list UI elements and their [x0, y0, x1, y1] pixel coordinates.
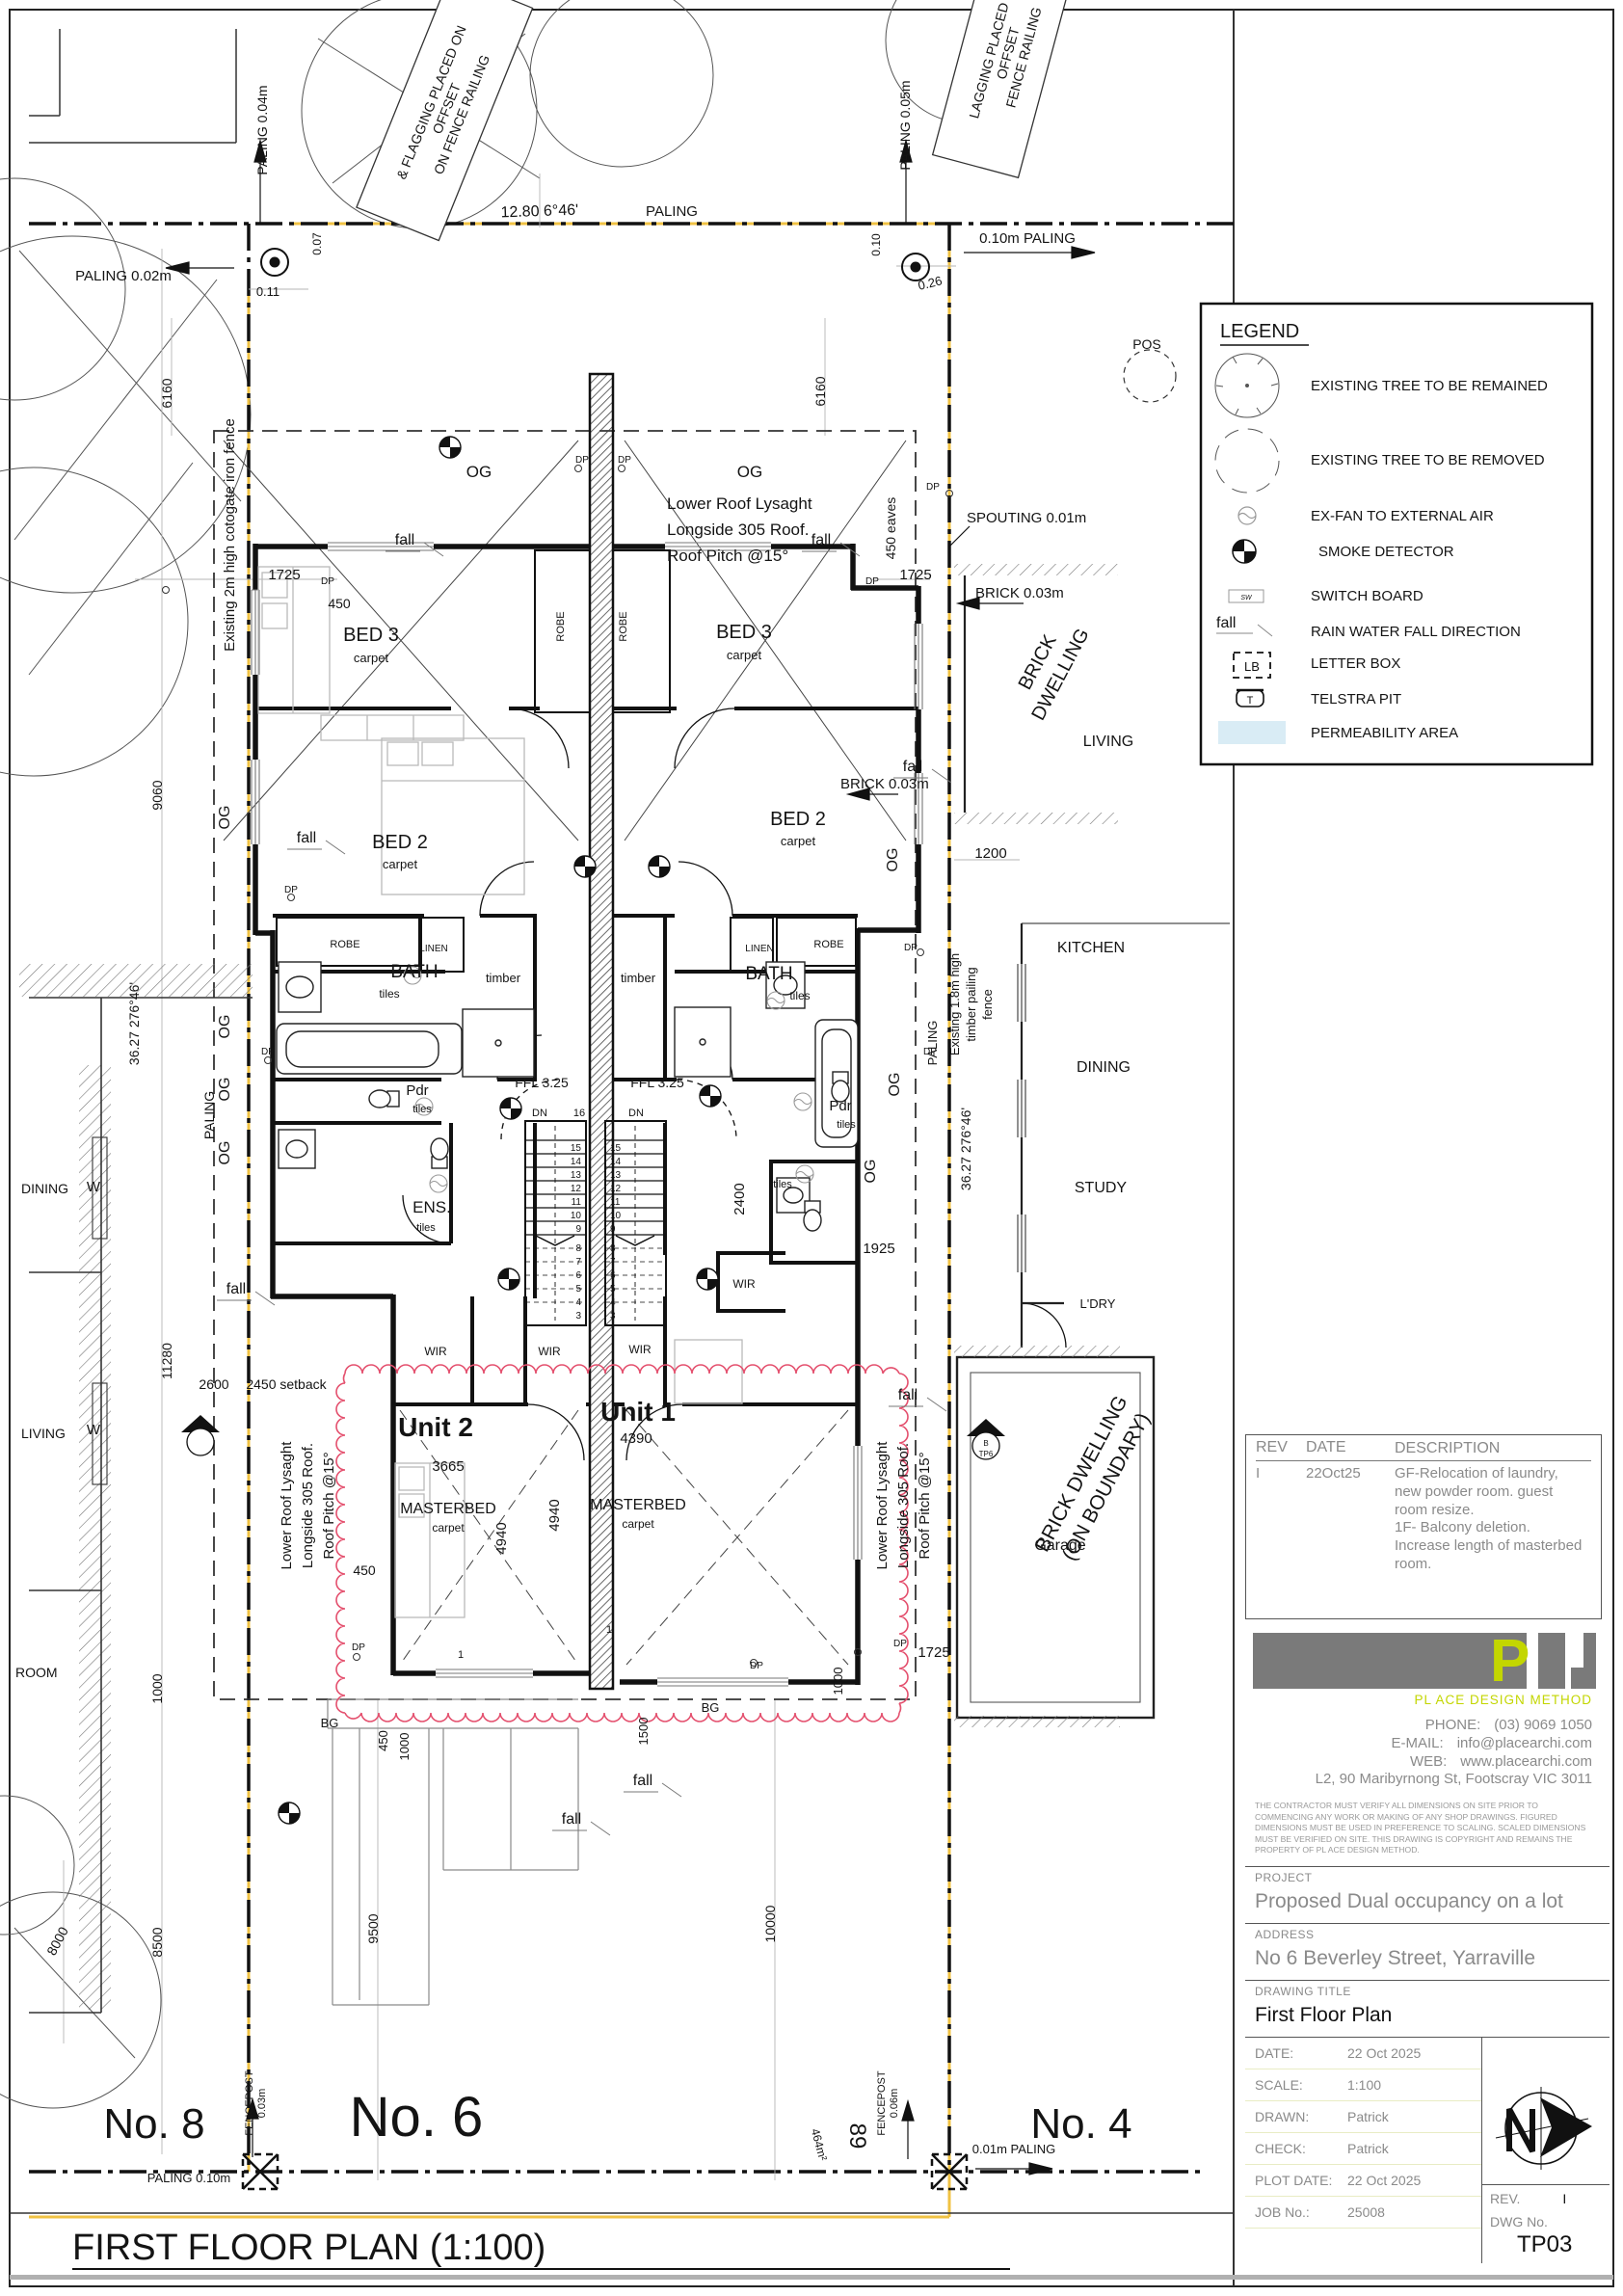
- phone-value: (03) 9069 1050: [1494, 1717, 1592, 1735]
- info-value: 22 Oct 2025: [1347, 2173, 1481, 2188]
- stair-number: 15: [571, 1143, 582, 1154]
- info-value: 22 Oct 2025: [1347, 2045, 1481, 2061]
- smoke-detector-icon: [500, 1098, 521, 1119]
- plan-label: 1: [606, 1624, 612, 1636]
- legend-item-label: SMOKE DETECTOR: [1318, 544, 1454, 560]
- plan-label: tiles: [789, 989, 810, 1002]
- info-label: CHECK:: [1255, 2141, 1347, 2156]
- plan-label: 1725: [899, 567, 931, 583]
- smoke-detector-icon: [498, 1268, 519, 1290]
- phone-label: PHONE:: [1425, 1717, 1481, 1735]
- smoke-detector-legend-icon: [1233, 540, 1256, 563]
- permeability-icon: [1218, 721, 1286, 744]
- plan-label: BATH: [745, 964, 792, 984]
- plan-label: LINEN: [419, 944, 447, 954]
- plan-label: W: [87, 1422, 101, 1438]
- plan-label: PALING: [646, 203, 698, 220]
- stair-number: 5: [575, 1284, 581, 1295]
- plan-label: OG: [737, 463, 762, 481]
- plan-label: Unit 1: [600, 1397, 676, 1427]
- plan-label: carpet: [354, 651, 389, 665]
- plan-label: tiles: [837, 1119, 856, 1131]
- address-value: No 6 Beverley Street, Yarraville: [1255, 1947, 1602, 1970]
- stair-number: 9: [610, 1224, 616, 1235]
- plan-label: fall: [811, 532, 831, 548]
- revision-desc: GF-Relocation of laundry, new powder roo…: [1395, 1465, 1591, 1574]
- plan-label: OG: [217, 1078, 233, 1102]
- stair-number: 8: [610, 1243, 616, 1254]
- plan-label: 0.07: [310, 232, 324, 255]
- plan-label: OG: [217, 1015, 233, 1039]
- plan-label: 1: [458, 1649, 464, 1661]
- stair-number: 6: [610, 1270, 616, 1281]
- plan-label: 12.80 6°46': [500, 202, 578, 222]
- plan-label: fall: [898, 1387, 918, 1403]
- plan-label: DP: [923, 1047, 937, 1057]
- plan-label: DP: [618, 455, 631, 466]
- plan-label: Unit 2: [398, 1412, 473, 1442]
- plan-label: Lower Roof LysaghtLongside 305 Roof.Roof…: [279, 1441, 337, 1570]
- plan-label: OG: [466, 463, 492, 481]
- plan-label: No. 8: [103, 2100, 204, 2148]
- plan-label: ROBE: [813, 939, 843, 950]
- plan-label: fall: [903, 759, 922, 775]
- telstra-text: T: [1247, 695, 1254, 707]
- plan-label: BED 2: [372, 832, 428, 853]
- pos-circle: [1124, 350, 1176, 402]
- plan-label: DP: [904, 943, 918, 953]
- plan-label: B: [983, 1439, 988, 1448]
- smoke-detector-icon: [279, 1802, 300, 1824]
- plan-label: OG: [863, 1160, 879, 1184]
- plan-label: 450: [328, 596, 351, 611]
- plan-label: DP: [893, 1639, 907, 1649]
- legend-item-label: RAIN WATER FALL DIRECTION: [1311, 624, 1521, 640]
- legend: LEGEND SW fall LB T: [1201, 304, 1592, 764]
- plan-label: MASTERBED: [590, 1497, 686, 1513]
- plan-label: fall: [395, 532, 414, 548]
- exfan-icon: [430, 1175, 447, 1192]
- downpipe-icon: [575, 466, 582, 472]
- stair-number: 3: [610, 1311, 616, 1322]
- plan-label: 0.01m PALING: [972, 2142, 1055, 2156]
- plan-label: BED 3: [716, 622, 772, 643]
- plan-label: 4940: [546, 1499, 563, 1531]
- plan-label: 4940: [493, 1522, 510, 1554]
- boundary-hatching: [19, 564, 1120, 2010]
- plan-label: 6160: [159, 378, 174, 408]
- info-label: DATE:: [1255, 2045, 1347, 2061]
- letterbox-text: LB: [1244, 659, 1260, 674]
- plan-label: 89: [844, 2123, 870, 2149]
- email-label: E-MAIL:: [1392, 1735, 1444, 1753]
- plan-label: tiles: [412, 1104, 432, 1115]
- dwg-number: TP03: [1517, 2231, 1610, 2258]
- plan-label: DINING: [21, 1181, 68, 1196]
- plan-label: tiles: [379, 987, 399, 1001]
- plan-label: POS: [1132, 336, 1161, 352]
- survey-benchmark-icon: [261, 249, 929, 280]
- legend-title: LEGEND: [1220, 321, 1299, 342]
- plan-label: DN: [628, 1108, 644, 1119]
- dwg-label: DWG No.: [1490, 2214, 1610, 2229]
- date-col-header: DATE: [1306, 1439, 1395, 1458]
- downpipe-icon: [354, 1654, 360, 1661]
- plan-label: WIR: [538, 1345, 561, 1358]
- plan-label: ROBE: [555, 611, 567, 641]
- plan-label: PALING 0.04m: [254, 85, 270, 174]
- plan-label: BRICKDWELLING: [1004, 613, 1093, 724]
- plan-label: fall: [226, 1281, 246, 1297]
- revision-date: 22Oct25: [1306, 1465, 1395, 1574]
- plan-label: KITCHEN: [1057, 940, 1125, 956]
- info-table: DATE:22 Oct 2025 SCALE:1:100 DRAWN:Patri…: [1245, 2037, 1610, 2263]
- info-label: DRAWN:: [1255, 2109, 1347, 2124]
- plan-label: timber: [486, 971, 521, 985]
- plan-label: carpet: [432, 1521, 465, 1535]
- info-label: JOB No.:: [1255, 2204, 1347, 2220]
- legend-item-label: PERMEABILITY AREA: [1311, 725, 1458, 741]
- party-wall: [590, 374, 613, 1689]
- plan-label: 1000: [831, 1668, 845, 1695]
- stair-number: 7: [610, 1257, 616, 1268]
- lower-porch-structures: [328, 1699, 578, 2005]
- plan-label: 36.27 276°46': [958, 1108, 973, 1190]
- plan-label: 1500: [636, 1718, 651, 1746]
- plan-label: LIVING: [21, 1426, 66, 1441]
- plan-label: fall: [562, 1811, 581, 1828]
- revision-rev: I: [1256, 1465, 1306, 1574]
- plan-label: DP: [865, 576, 879, 587]
- plan-label: DINING: [1077, 1059, 1131, 1076]
- plan-label: 0.11: [256, 284, 279, 299]
- stair-number: 5: [610, 1284, 616, 1295]
- stair-number: 14: [571, 1157, 582, 1167]
- plan-label: 2400: [732, 1183, 748, 1215]
- info-value: Patrick: [1347, 2109, 1481, 2124]
- stair-number: 12: [610, 1184, 622, 1194]
- plan-label: carpet: [383, 857, 418, 871]
- rev-value: I: [1562, 2191, 1566, 2206]
- plan-label: tiles: [416, 1222, 436, 1234]
- stair-number: 4: [575, 1297, 581, 1308]
- plan-label: 450: [353, 1562, 376, 1578]
- plan-label: DP: [575, 455, 589, 466]
- plan-label: ENS.: [412, 1198, 451, 1216]
- plan-label: LINEN: [745, 944, 773, 954]
- rev-col-header: REV: [1256, 1439, 1306, 1458]
- plan-label: Existing 2m high cotogate iron fence: [222, 418, 238, 652]
- exfan-icon: [794, 1093, 811, 1110]
- stair-number: 9: [575, 1224, 581, 1235]
- stair-number: 14: [610, 1157, 622, 1167]
- plan-label: BED 2: [770, 809, 826, 830]
- plan-label: carpet: [781, 834, 816, 848]
- title-block: REV DATE DESCRIPTION I 22Oct25 GF-Reloca…: [1236, 1434, 1610, 2263]
- plan-label: BG: [321, 1716, 339, 1730]
- plan-label: BRICK 0.03m: [975, 585, 1064, 601]
- project-label: PROJECT: [1255, 1871, 1602, 1884]
- stair-number: 12: [571, 1184, 582, 1194]
- sheet-title: FIRST FLOOR PLAN (1:100): [72, 2228, 545, 2268]
- stair-number: 7: [575, 1257, 581, 1268]
- plan-label: 2450 setback: [246, 1376, 327, 1392]
- stair-number: 4: [610, 1297, 616, 1308]
- plan-label: 9060: [149, 780, 165, 810]
- plan-label: STUDY: [1075, 1180, 1128, 1196]
- project-value: Proposed Dual occupancy on a lot: [1255, 1890, 1602, 1913]
- plan-label: FENCEPOST0.03m: [244, 2070, 268, 2136]
- stair-number: 13: [571, 1170, 582, 1181]
- smoke-detector-icon: [700, 1085, 721, 1107]
- plan-label: 1925: [863, 1241, 894, 1257]
- legend-item-label: EXISTING TREE TO BE REMOVED: [1311, 452, 1545, 468]
- plan-label: 0.26: [917, 273, 944, 293]
- plan-label: ROBE: [618, 611, 629, 641]
- plan-label: 1000: [397, 1733, 412, 1761]
- smoke-detector-icon: [574, 856, 596, 877]
- plan-label: fall: [297, 830, 316, 846]
- stair-number: 11: [610, 1197, 621, 1208]
- smoke-detector-icon: [439, 437, 461, 458]
- plan-label: fall: [633, 1773, 652, 1789]
- plan-label: PALING 0.05m: [897, 80, 913, 170]
- disclaimer-text: THE CONTRACTOR MUST VERIFY ALL DIMENSION…: [1255, 1801, 1592, 1856]
- plan-label: BG: [702, 1700, 720, 1715]
- plan-label: PALING 0.02m: [75, 268, 172, 284]
- plan-label: PALING: [201, 1091, 217, 1139]
- plan-label: DP: [261, 1047, 275, 1057]
- plan-label: Lower Roof LysaghtLongside 305 Roof.Roof…: [874, 1441, 933, 1570]
- plan-label: 1200: [974, 845, 1006, 862]
- stair-number: 15: [610, 1143, 622, 1154]
- plan-label: FFL 3.25: [630, 1075, 684, 1090]
- plan-label: MASTERBED: [400, 1501, 496, 1517]
- plan-label: 0.10: [869, 233, 883, 256]
- info-value: 25008: [1347, 2204, 1481, 2220]
- plan-label: WIR: [424, 1345, 447, 1358]
- legend-item-label: EXISTING TREE TO BE REMAINED: [1311, 378, 1548, 394]
- stair-number: 3: [575, 1311, 581, 1322]
- legend-item-label: LETTER BOX: [1311, 655, 1400, 672]
- sheet-footer-bar: [10, 2275, 1613, 2280]
- plan-label: DP: [750, 1661, 763, 1671]
- plan-label: 11280: [159, 1343, 174, 1379]
- plan-label: SPOUTING 0.01m: [967, 510, 1086, 526]
- stair-number: 6: [575, 1270, 581, 1281]
- stair-number: 10: [571, 1211, 582, 1221]
- info-label: SCALE:: [1255, 2077, 1347, 2093]
- plan-label: No. 4: [1030, 2100, 1131, 2148]
- plan-label: LIVING: [1083, 734, 1133, 750]
- plan-label: 6160: [812, 376, 828, 406]
- revision-row: I 22Oct25 GF-Relocation of laundry, new …: [1256, 1461, 1591, 1574]
- plan-label: 36.27 276°46': [126, 982, 142, 1065]
- plan-label: 1725: [268, 567, 300, 583]
- plan-label: carpet: [727, 648, 762, 662]
- plan-label: Pdr: [406, 1082, 428, 1099]
- plan-label: Garage: [1034, 1537, 1085, 1554]
- stair-number: 11: [572, 1197, 582, 1208]
- web-value: www.placearchi.com: [1460, 1753, 1592, 1772]
- web-label: WEB:: [1410, 1753, 1447, 1772]
- plan-label: BATH: [390, 962, 438, 982]
- plan-label: ROOM: [15, 1665, 58, 1680]
- desc-col-header: DESCRIPTION: [1395, 1439, 1591, 1458]
- switchboard-text: SW: [1240, 595, 1253, 601]
- logo-p-glyph: P: [1490, 1627, 1530, 1695]
- plan-label: OG: [887, 1073, 903, 1097]
- info-value: 1:100: [1347, 2077, 1481, 2093]
- drawing-sheet: FIRST FLOOR PLAN (1:100) LEGEND SW fall: [0, 0, 1623, 2296]
- plan-label: PALING: [925, 1021, 940, 1066]
- neighbour-structure-topleft: [29, 29, 236, 143]
- plan-label: L'DRY: [1080, 1296, 1116, 1311]
- plan-label: 8000: [43, 1924, 71, 1958]
- plan-label: timber: [621, 971, 656, 985]
- stair-number: 13: [610, 1170, 622, 1181]
- drawing-title-value: First Floor Plan: [1255, 2004, 1602, 2027]
- company-address: L2, 90 Maribyrnong St, Footscray VIC 301…: [1316, 1771, 1592, 1789]
- rev-label: REV.: [1490, 2191, 1520, 2206]
- downpipe-icon: [619, 466, 625, 472]
- plan-label: DP: [352, 1642, 365, 1653]
- plan-label: Lower Roof LysaghtLongside 305 Roof.Roof…: [667, 494, 812, 565]
- plan-label: carpet: [622, 1517, 654, 1531]
- company-tagline: PL ACE DESIGN METHOD: [1236, 1693, 1592, 1707]
- company-contact: PHONE:(03) 9069 1050 E-MAIL:info@placear…: [1236, 1717, 1592, 1789]
- plan-label: WIR: [628, 1343, 652, 1356]
- plan-label: DN: [532, 1108, 547, 1119]
- right-neighbour-walls: [965, 575, 1230, 1348]
- smoke-detector-icon: [697, 1268, 718, 1290]
- plan-label: WIR: [732, 1277, 756, 1291]
- legend-item-label: SWITCH BOARD: [1311, 588, 1423, 604]
- stair-number: 10: [610, 1211, 622, 1221]
- plan-label: 16: [573, 1108, 585, 1119]
- email-value: info@placearchi.com: [1457, 1735, 1592, 1753]
- plan-label: DP: [284, 885, 298, 895]
- plan-label: PALING 0.10m: [147, 2171, 230, 2185]
- plan-label: W: [87, 1179, 101, 1195]
- plan-label: OG: [217, 1141, 233, 1165]
- fall-symbol-text: fall: [1216, 615, 1236, 631]
- plan-label: FFL 3.25: [515, 1075, 569, 1090]
- downpipe-icon: [918, 949, 924, 956]
- plan-label: 1725: [918, 1644, 949, 1661]
- plan-label: 0.10m PALING: [979, 230, 1076, 247]
- plan-label: 2600: [199, 1376, 228, 1392]
- plan-label: tiles: [773, 1179, 792, 1190]
- plan-label: OG: [217, 806, 233, 830]
- info-value: Patrick: [1347, 2141, 1481, 2156]
- plan-label: 464m²: [809, 2127, 830, 2162]
- plan-label: Existing 1.8m hightimber pailingfence: [947, 953, 995, 1055]
- legend-item-label: EX-FAN TO EXTERNAL AIR: [1311, 508, 1494, 524]
- plan-label: 9500: [365, 1913, 381, 1943]
- plan-label: 10000: [762, 1905, 778, 1942]
- plan-label: DP: [926, 482, 940, 493]
- stair-number: 8: [575, 1243, 581, 1254]
- downpipe-icon: [163, 587, 170, 594]
- plan-label: BRICK 0.03m: [840, 776, 929, 792]
- plan-label: 450: [376, 1730, 390, 1751]
- address-label: ADDRESS: [1255, 1928, 1602, 1941]
- plan-label: DP: [321, 576, 334, 587]
- plan-label: 4390: [620, 1430, 652, 1447]
- legend-item-label: TELSTRA PIT: [1311, 691, 1401, 707]
- plan-label: Pdr: [829, 1098, 851, 1114]
- drawing-title-label: DRAWING TITLE: [1255, 1985, 1602, 1998]
- smoke-detector-icon: [649, 856, 670, 877]
- revision-table: REV DATE DESCRIPTION I 22Oct25 GF-Reloca…: [1245, 1434, 1602, 1619]
- plan-label: OG: [885, 848, 901, 872]
- plan-label: BED 3: [343, 625, 399, 646]
- plan-label: 1000: [149, 1673, 165, 1703]
- plan-label: 8500: [149, 1927, 165, 1957]
- plan-label: FENCEPOST0.06m: [876, 2070, 900, 2136]
- info-label: PLOT DATE:: [1255, 2173, 1347, 2188]
- plan-label: 3665: [432, 1458, 464, 1475]
- plan-label: ROBE: [330, 939, 359, 950]
- plan-label: TP6: [979, 1450, 994, 1458]
- company-logo: P: [1253, 1633, 1592, 1691]
- plan-label: 450 eaves: [883, 497, 898, 560]
- plan-label: No. 6: [350, 2086, 484, 2149]
